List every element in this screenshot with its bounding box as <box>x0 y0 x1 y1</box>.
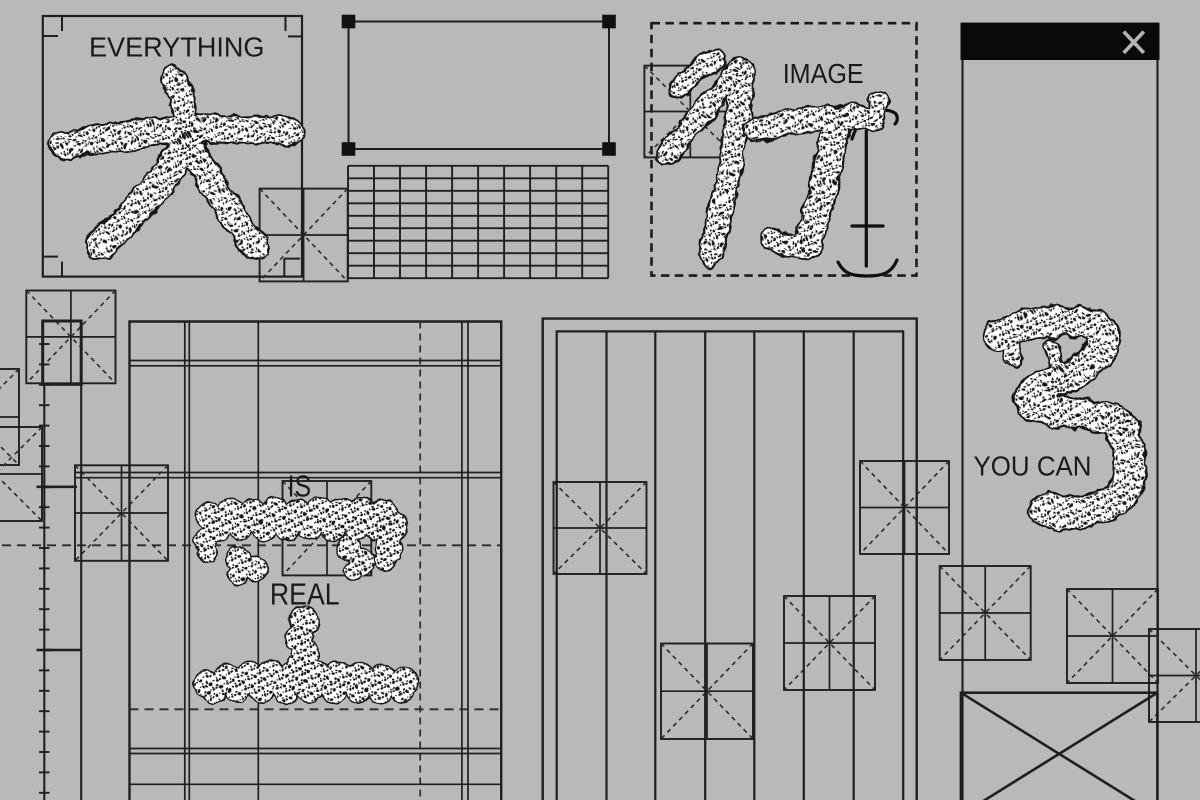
svg-text:IS: IS <box>288 469 312 504</box>
svg-text:EVERYTHING: EVERYTHING <box>89 31 265 62</box>
svg-text:IMAGE: IMAGE <box>783 58 864 89</box>
svg-text:YOU CAN: YOU CAN <box>974 451 1092 482</box>
